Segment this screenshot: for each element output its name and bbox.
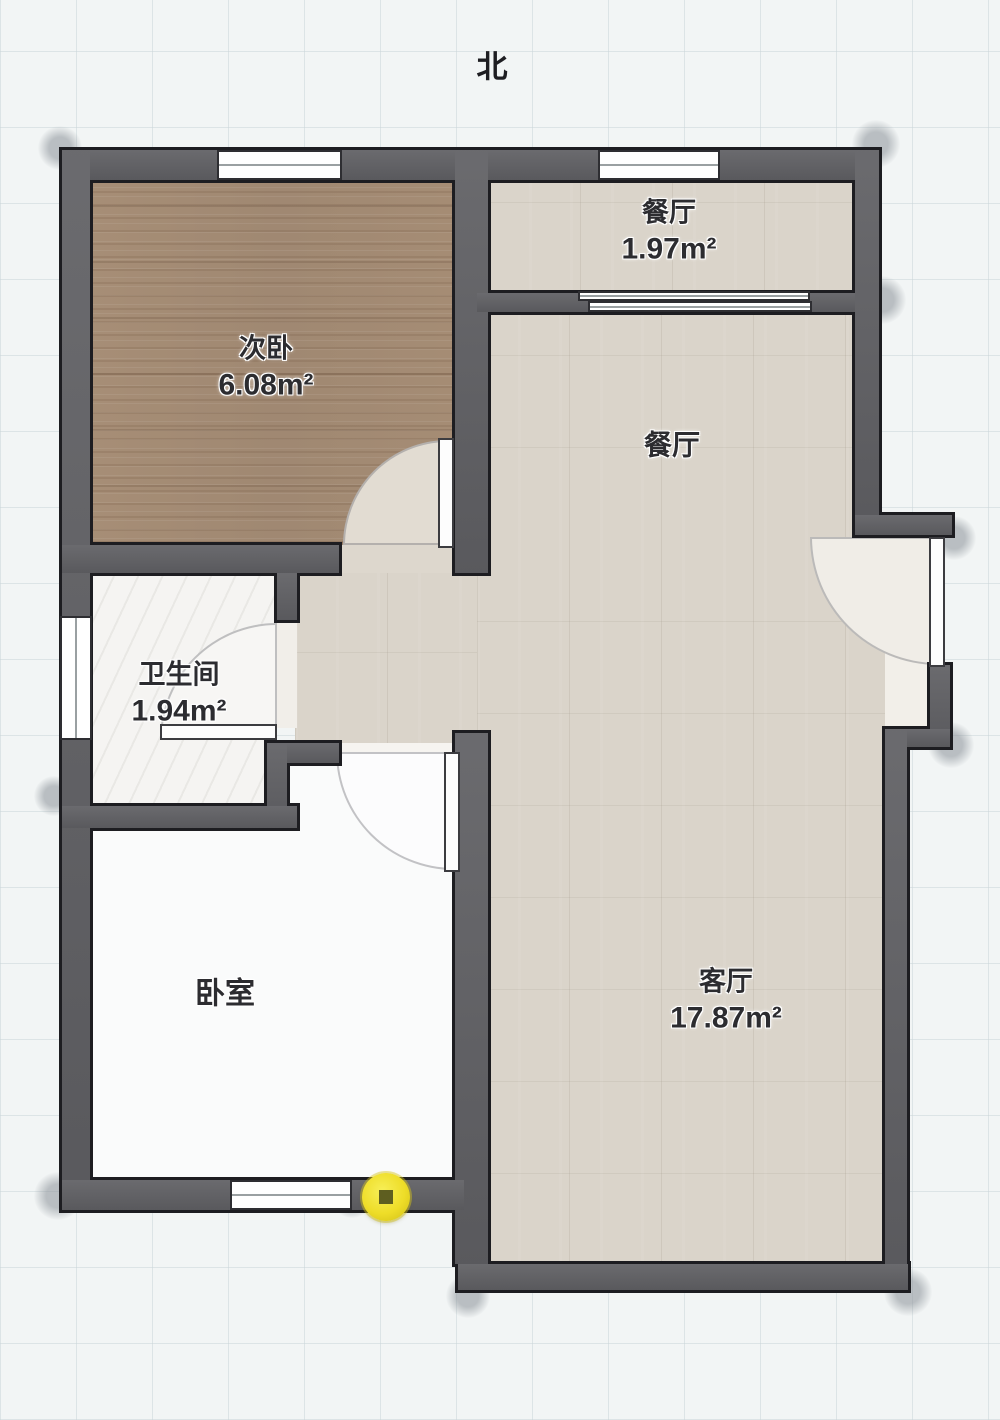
sliding-panel-upper[interactable] bbox=[578, 291, 810, 301]
wall bbox=[855, 515, 952, 535]
room-area: 17.87m² bbox=[670, 999, 782, 1037]
window-dining-nook[interactable] bbox=[598, 150, 720, 180]
room-label-secondary-bedroom: 次卧 6.08m² bbox=[218, 332, 313, 403]
door-bedroom[interactable] bbox=[444, 752, 460, 872]
floor-bedroom[interactable] bbox=[90, 828, 457, 1182]
room-label-living-room: 客厅 17.87m² bbox=[670, 965, 782, 1036]
wall-joint-marker-center bbox=[379, 1190, 393, 1204]
room-name: 餐厅 bbox=[644, 428, 700, 463]
floor-living-room[interactable] bbox=[477, 535, 885, 1266]
door-secondary-bedroom[interactable] bbox=[438, 438, 454, 548]
wall bbox=[458, 1264, 908, 1290]
room-name: 客厅 bbox=[670, 965, 782, 999]
room-area: 6.08m² bbox=[218, 366, 313, 404]
floor-plan: 北 次卧 6.08m² 餐厅 1.97m² 餐厅 卫生间 1.94m² 卧室 客… bbox=[0, 0, 1000, 1420]
window-bedroom[interactable] bbox=[230, 1180, 352, 1210]
wall bbox=[62, 806, 297, 828]
room-name: 次卧 bbox=[218, 332, 313, 366]
threshold-bathroom bbox=[277, 616, 297, 728]
room-area: 1.94m² bbox=[131, 692, 226, 730]
floor-hallway[interactable] bbox=[295, 573, 477, 745]
wall bbox=[277, 573, 297, 620]
threshold-secondary-bedroom bbox=[337, 545, 455, 573]
compass-north-label: 北 bbox=[477, 42, 508, 87]
room-label-dining: 餐厅 bbox=[644, 428, 700, 463]
wall bbox=[62, 545, 339, 573]
wall-joint-marker[interactable] bbox=[362, 1173, 410, 1221]
wall bbox=[455, 150, 488, 573]
room-area: 1.97m² bbox=[621, 230, 716, 268]
door-entrance[interactable] bbox=[929, 537, 945, 667]
sliding-panel-lower[interactable] bbox=[588, 301, 812, 312]
room-label-bathroom: 卫生间 1.94m² bbox=[131, 658, 226, 729]
room-label-dining-nook: 餐厅 1.97m² bbox=[621, 196, 716, 267]
wall bbox=[885, 729, 907, 1290]
room-label-bedroom: 卧室 bbox=[195, 975, 255, 1013]
floor-dining-upper[interactable] bbox=[477, 310, 855, 540]
wall bbox=[855, 150, 879, 535]
room-name: 餐厅 bbox=[621, 196, 716, 230]
room-name: 卧室 bbox=[195, 975, 255, 1013]
room-name: 卫生间 bbox=[131, 658, 226, 692]
window-bathroom[interactable] bbox=[60, 616, 92, 740]
window-secondary-bedroom[interactable] bbox=[217, 150, 342, 180]
